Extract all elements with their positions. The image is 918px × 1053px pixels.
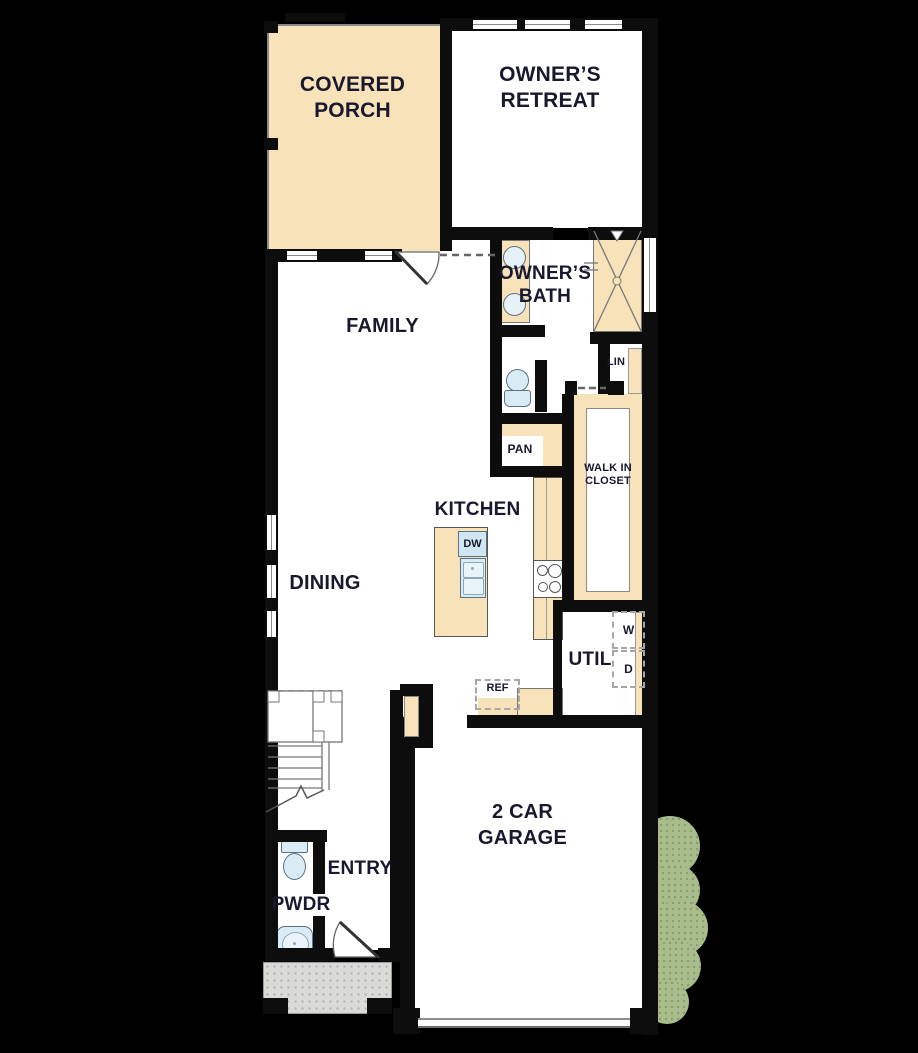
room-label-entry: ENTRY	[325, 858, 395, 881]
stair-newel-post	[331, 691, 342, 702]
label-line: CLOSET	[573, 475, 643, 488]
label-line: GARAGE	[460, 825, 585, 851]
label-line: 2 CAR	[460, 799, 585, 825]
room-label-lin: LIN	[602, 356, 630, 369]
room-label-kitchen: KITCHEN	[425, 499, 530, 522]
stair-newel-post	[313, 691, 324, 702]
room-label-util: UTIL	[560, 649, 620, 672]
room-label-owners-retreat: OWNER’S RETREAT	[465, 62, 635, 115]
shower-drain-icon	[613, 277, 621, 285]
label-line: WALK IN	[573, 462, 643, 475]
room-label-walk-in-closet: WALK IN CLOSET	[573, 462, 643, 488]
room-label-owners-bath: OWNER’S BATH	[495, 263, 595, 309]
shower-head-icon	[611, 231, 623, 241]
stair-break-line	[266, 786, 324, 812]
room-label-covered-porch: COVERED PORCH	[270, 72, 435, 125]
label-line: OWNER’S	[495, 263, 595, 286]
room-label-dining: DINING	[275, 571, 375, 595]
label-line: BATH	[495, 286, 595, 309]
floor-plan: DW W D REF	[0, 0, 918, 1053]
stair-newel-post	[313, 731, 324, 742]
label-line: RETREAT	[465, 88, 635, 114]
stair-treads	[268, 742, 329, 790]
stair-newel-post	[268, 691, 279, 702]
room-label-pwdr: PWDR	[266, 894, 336, 917]
room-label-family: FAMILY	[330, 314, 435, 338]
room-label-garage: 2 CAR GARAGE	[460, 799, 585, 851]
label-line: PORCH	[270, 98, 435, 124]
label-line: OWNER’S	[465, 62, 635, 88]
room-label-pan: PAN	[499, 442, 541, 456]
label-line: COVERED	[270, 72, 435, 98]
plan-linework	[0, 0, 918, 1053]
